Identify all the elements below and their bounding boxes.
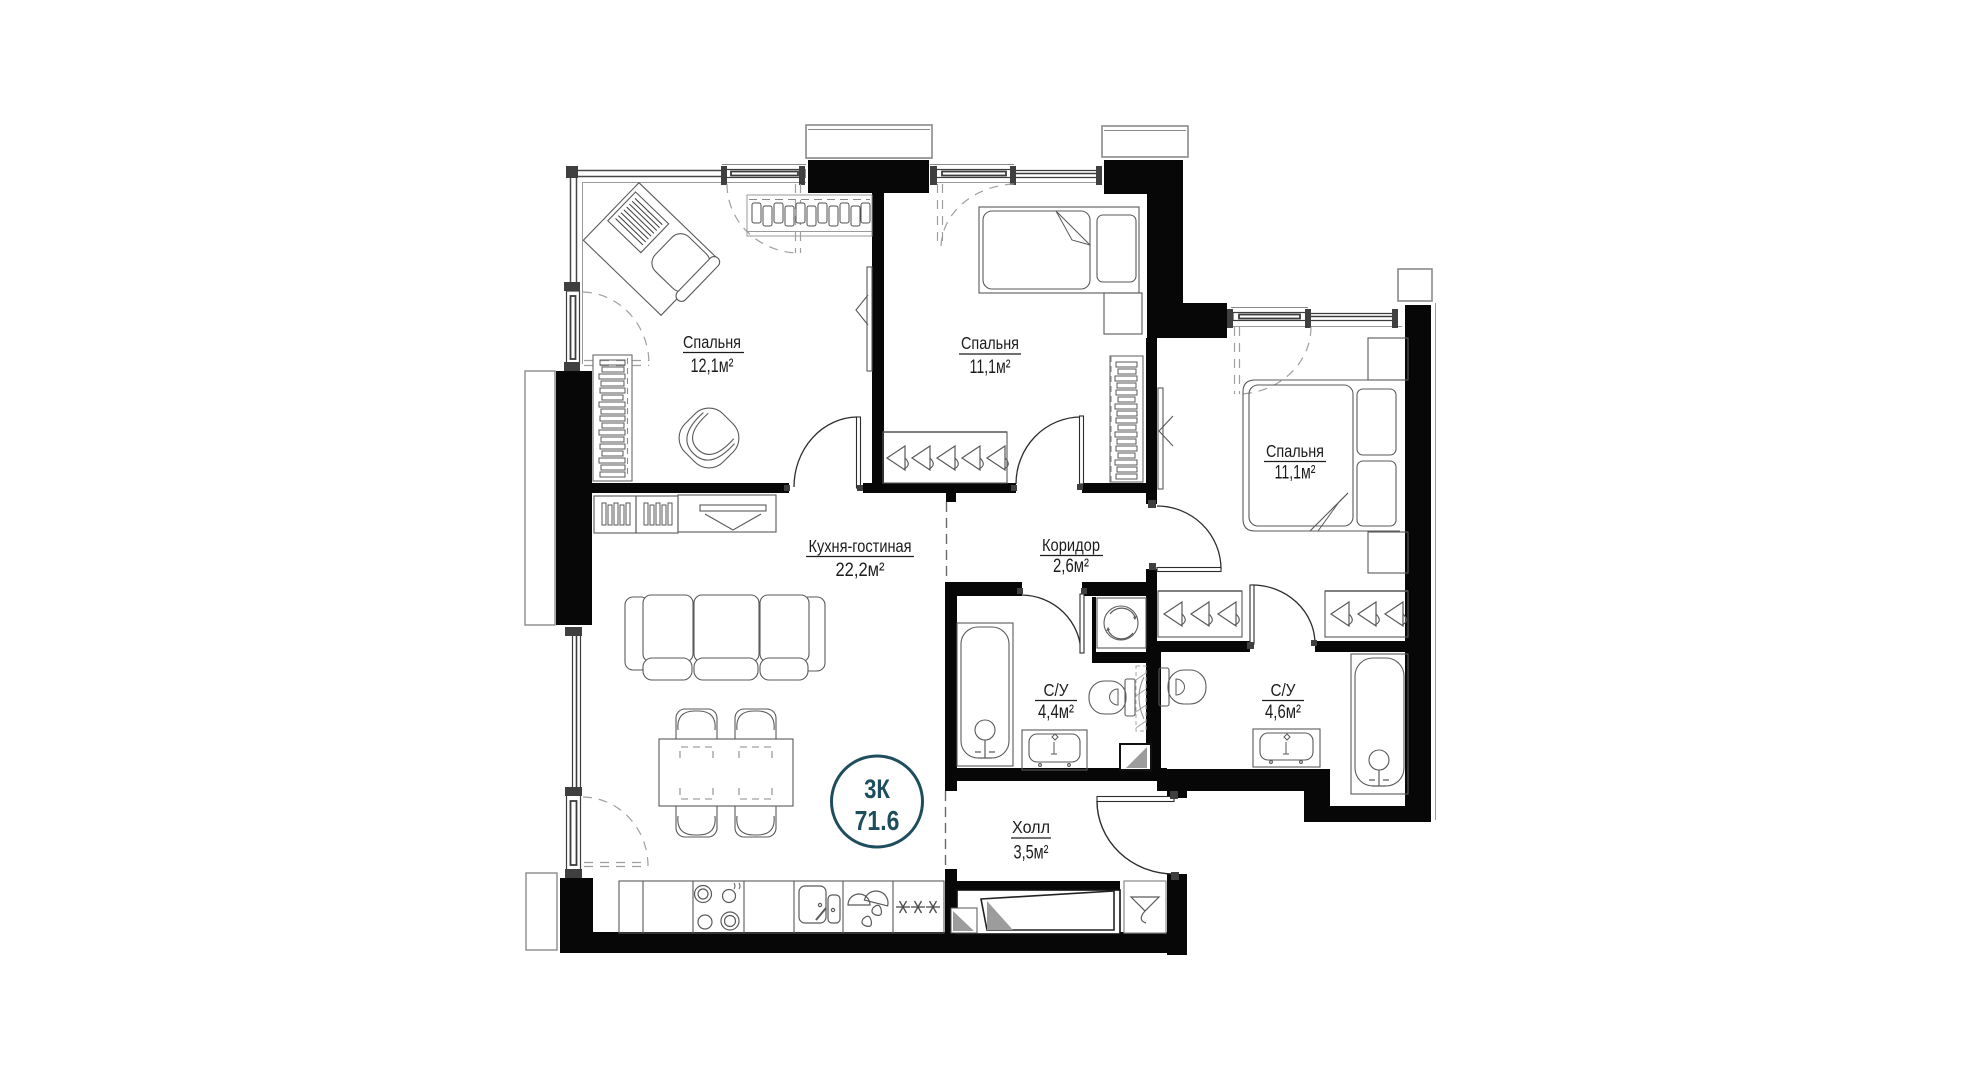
svg-text:2,6м²: 2,6м² (1053, 555, 1089, 577)
svg-text:3,5м²: 3,5м² (1014, 842, 1049, 864)
svg-text:Коридор: Коридор (1042, 535, 1100, 555)
svg-text:71.6: 71.6 (855, 806, 900, 837)
svg-text:4,6м²: 4,6м² (1265, 701, 1301, 723)
svg-text:Холл: Холл (1012, 817, 1050, 837)
svg-text:Спальня: Спальня (683, 332, 741, 352)
svg-text:11,1м²: 11,1м² (1275, 462, 1316, 484)
svg-text:11,1м²: 11,1м² (970, 356, 1011, 378)
svg-text:Спальня: Спальня (961, 333, 1019, 353)
svg-text:Кухня-гостиная: Кухня-гостиная (809, 536, 912, 556)
svg-text:4,4м²: 4,4м² (1038, 701, 1074, 723)
svg-text:3К: 3К (864, 775, 891, 805)
svg-text:Спальня: Спальня (1266, 441, 1324, 461)
svg-text:С/У: С/У (1271, 680, 1297, 700)
svg-text:12,1м²: 12,1м² (691, 355, 734, 377)
svg-text:22,2м²: 22,2м² (836, 559, 885, 581)
svg-text:С/У: С/У (1044, 680, 1070, 700)
